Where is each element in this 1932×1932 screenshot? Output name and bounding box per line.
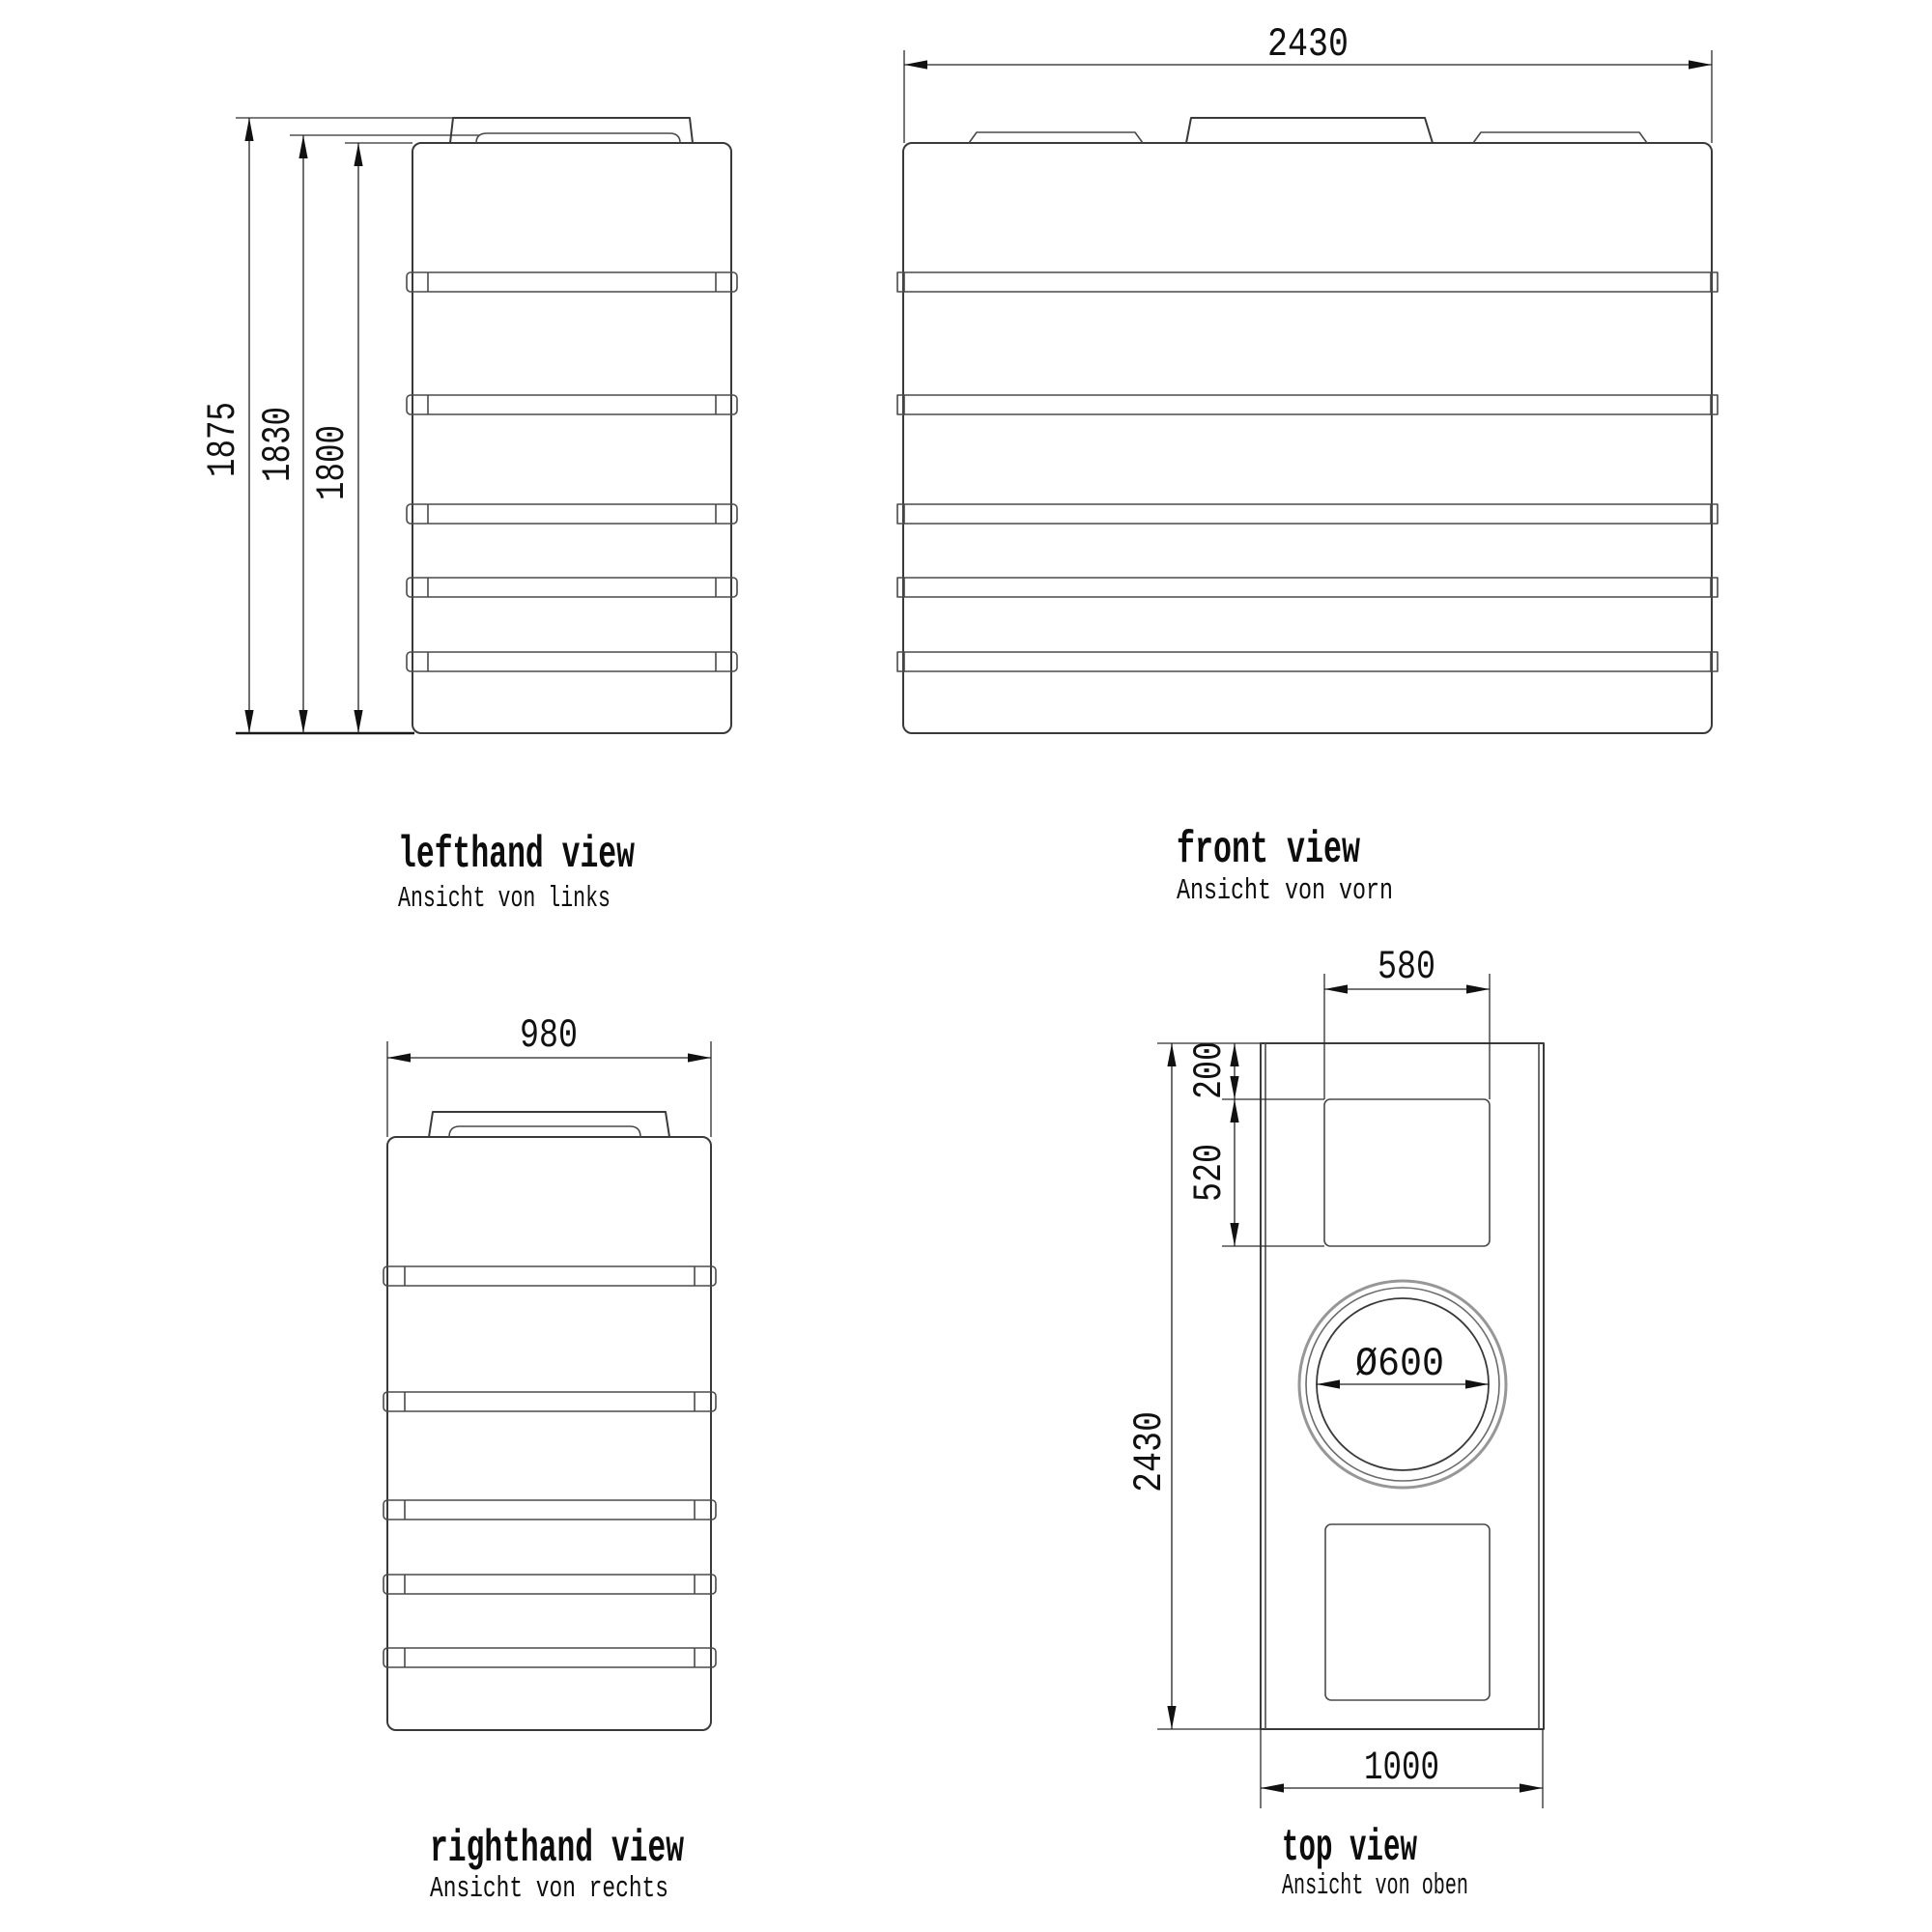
rib [407, 652, 737, 671]
top-dim-520: 520 [1186, 1144, 1233, 1202]
top-recess [1324, 1099, 1490, 1246]
rib [897, 395, 1718, 414]
righthand-tank-body [387, 1137, 711, 1730]
front-view: 2430 [897, 21, 1718, 908]
rib [384, 1648, 716, 1667]
top-dim-1000: 1000 [1364, 1745, 1439, 1791]
righthand-lid-outer [429, 1112, 669, 1137]
rib [384, 1500, 716, 1520]
righthand-ribs [384, 1266, 716, 1667]
top-view: 580 200 520 2430 Ø600 1000 top view Ansi… [1126, 944, 1544, 1903]
rib [407, 272, 737, 292]
front-top-boss-center [1186, 118, 1433, 143]
lefthand-dim-1875: 1875 [200, 402, 246, 477]
technical-drawing-page: 1875 1830 1800 [0, 0, 1932, 1932]
lefthand-view-title: lefthand view [398, 830, 635, 880]
lefthand-dim-1800: 1800 [309, 425, 355, 500]
top-dim-diameter-600: Ø600 [1355, 1341, 1444, 1387]
lefthand-dim-1830: 1830 [255, 407, 301, 482]
rib [384, 1266, 716, 1286]
rib [407, 578, 737, 597]
lefthand-tank-body [412, 143, 731, 733]
lefthand-view: 1875 1830 1800 [200, 118, 737, 916]
front-dim-2430: 2430 [1267, 21, 1349, 68]
front-tank-body [903, 143, 1712, 733]
rib [897, 652, 1718, 671]
rib [897, 272, 1718, 292]
rib [407, 395, 737, 414]
top-dim-580: 580 [1378, 944, 1435, 990]
righthand-dim-980: 980 [520, 1012, 578, 1059]
front-top-boss-left [969, 132, 1143, 143]
lefthand-view-subtitle: Ansicht von links [398, 882, 611, 916]
lefthand-ribs [407, 272, 737, 671]
top-dim-2430: 2430 [1126, 1411, 1173, 1492]
front-ribs [897, 272, 1718, 671]
rib [407, 504, 737, 524]
lefthand-lid-outer [450, 118, 693, 143]
top-access-square [1325, 1524, 1490, 1700]
righthand-view-title: righthand view [430, 1824, 684, 1874]
righthand-view-subtitle: Ansicht von rechts [430, 1872, 668, 1906]
front-view-title: front view [1177, 825, 1360, 875]
rib [897, 578, 1718, 597]
rib [897, 504, 1718, 524]
tank-technical-drawing: 1875 1830 1800 [0, 0, 1932, 1932]
lefthand-lid-inner [476, 133, 680, 143]
righthand-view: 980 [384, 1012, 716, 1906]
rib [384, 1392, 716, 1411]
rib [384, 1575, 716, 1594]
top-view-title: top view [1282, 1823, 1417, 1873]
top-dim-200: 200 [1186, 1041, 1233, 1099]
righthand-lid-inner [449, 1126, 640, 1137]
front-top-boss-right [1473, 132, 1647, 143]
front-view-subtitle: Ansicht von vorn [1177, 874, 1393, 908]
top-view-subtitle: Ansicht von oben [1282, 1869, 1468, 1903]
